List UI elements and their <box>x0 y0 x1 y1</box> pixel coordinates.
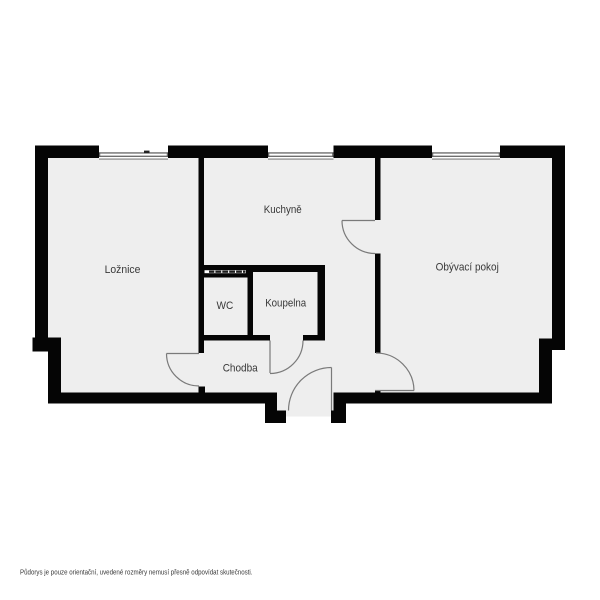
svg-text:Koupelna: Koupelna <box>265 297 307 309</box>
svg-text:Ložnice: Ložnice <box>105 264 141 276</box>
svg-text:WC: WC <box>217 300 234 312</box>
svg-text:Obývací pokoj: Obývací pokoj <box>436 262 499 274</box>
svg-text:Kuchyně: Kuchyně <box>264 204 302 216</box>
svg-text:Chodba: Chodba <box>223 362 259 374</box>
svg-text:Půdorys je pouze orientační, u: Půdorys je pouze orientační, uvedené roz… <box>20 568 253 576</box>
